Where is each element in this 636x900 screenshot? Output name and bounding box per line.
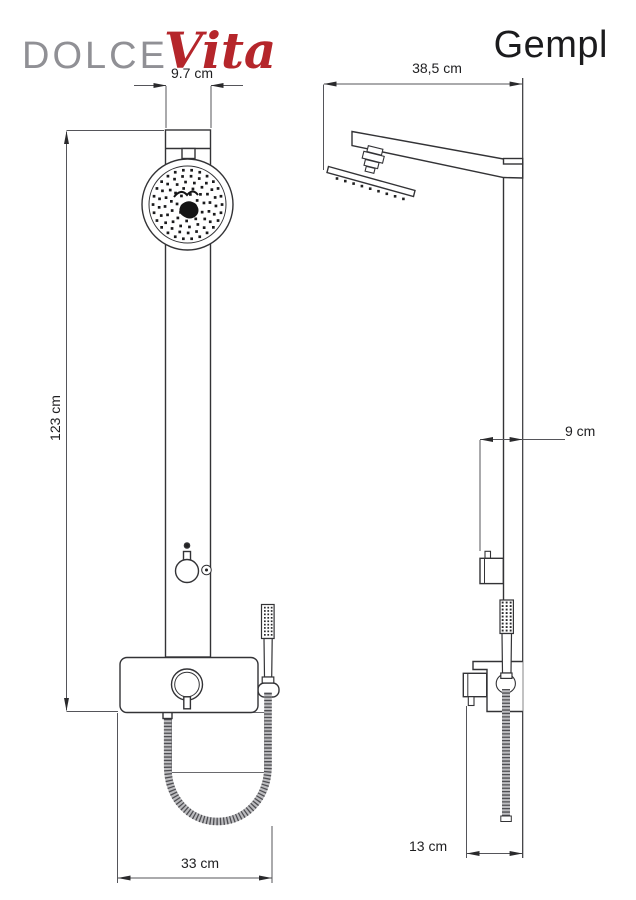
side-hose [501, 689, 512, 822]
side-dimensions [324, 84, 566, 858]
side-mixer-knob [463, 673, 486, 705]
front-lower-panel [172, 713, 265, 773]
side-view [327, 78, 523, 858]
side-ball-joint [359, 145, 386, 175]
front-view [120, 130, 279, 822]
front-head-bracket [182, 149, 195, 159]
front-hand-shower [262, 605, 275, 684]
shower-column-drawing [0, 0, 636, 900]
side-hand-shower [500, 600, 513, 678]
side-column-cap [504, 159, 523, 165]
technical-drawing-page: DOLCE Vita Gempl 9.7 cm 123 cm 33 cm 38,… [0, 0, 636, 900]
side-diverter-knob [480, 551, 503, 583]
